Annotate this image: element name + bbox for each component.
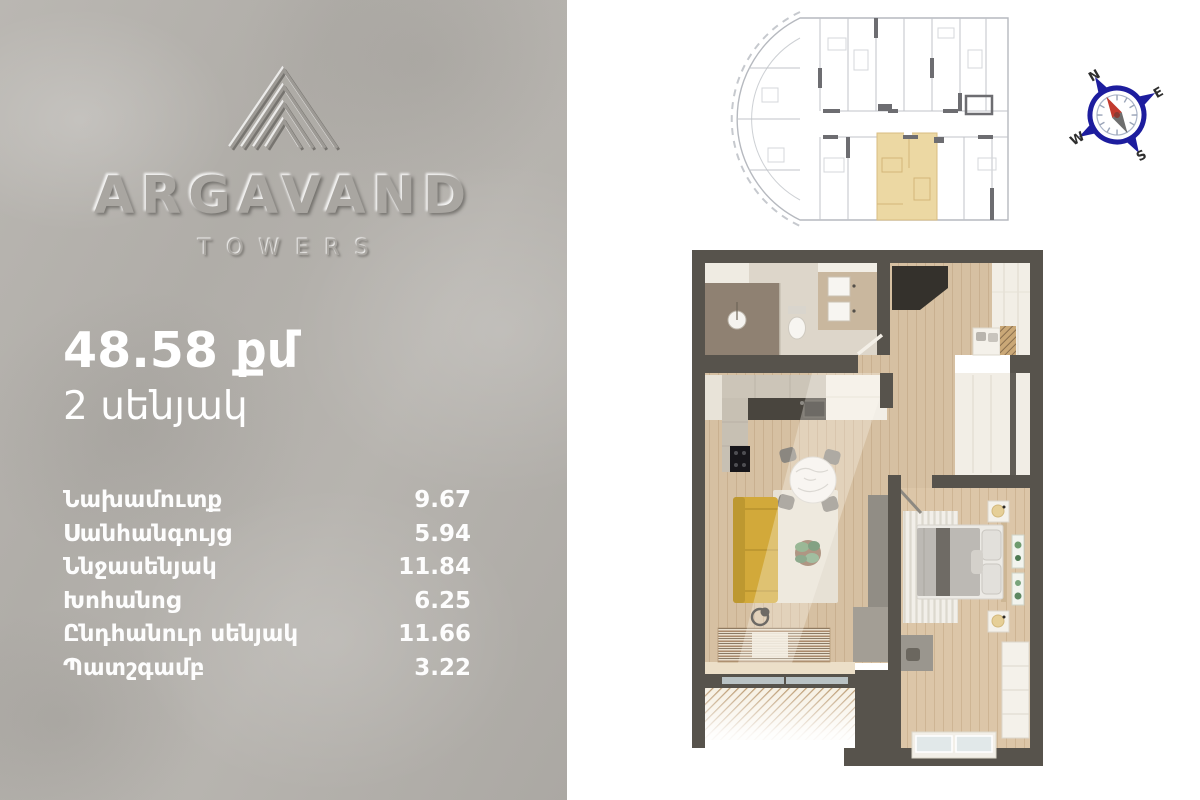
compass-label-s: S xyxy=(1134,147,1150,165)
table-lamp xyxy=(992,505,1004,517)
room-row: Պատշգամբ 3.22 xyxy=(63,655,471,689)
apartment-floorplan xyxy=(692,250,1043,766)
sink xyxy=(828,302,850,321)
bedroom-window xyxy=(912,732,996,758)
toilet xyxy=(789,317,806,339)
room-value: 9.67 xyxy=(414,487,471,513)
room-label: Ընդհանուր սենյակ xyxy=(63,621,298,647)
building-overview-plan xyxy=(728,8,1018,230)
room-table: Նախամուտք 9.67 Սանհանգույց 5.94 Ննջասենյ… xyxy=(63,487,471,689)
room-value: 5.94 xyxy=(414,521,471,547)
unit-rooms-count: 2 սենյակ xyxy=(63,384,248,429)
room-row: Նախամուտք 9.67 xyxy=(63,487,471,521)
cooktop xyxy=(730,446,750,472)
room-label: Պատշգամբ xyxy=(63,655,205,681)
room-row: Ննջասենյակ 11.84 xyxy=(63,554,471,588)
argavand-mark-icon xyxy=(219,60,349,156)
sink xyxy=(828,277,850,296)
pillow xyxy=(982,564,1001,594)
page: ARGAVAND TOWERS 48.58 քմ 2 սենյակ Նախամո… xyxy=(0,0,1200,800)
brand-subtitle: TOWERS xyxy=(0,236,567,261)
room-row: Խոհանոց 6.25 xyxy=(63,588,471,622)
unit-area: 48.58 քմ xyxy=(63,322,298,379)
brand-name: ARGAVAND xyxy=(0,166,567,226)
overview-highlighted-unit xyxy=(877,133,937,220)
room-label: Խոհանոց xyxy=(63,588,181,614)
table-lamp xyxy=(992,615,1004,627)
entry-slat-accent xyxy=(1000,326,1016,355)
hallway-wardrobe xyxy=(955,373,1030,475)
room-label: Սանհանգույց xyxy=(63,521,231,547)
room-row: Սանհանգույց 5.94 xyxy=(63,521,471,555)
room-value: 3.22 xyxy=(414,655,471,681)
brand-panel: ARGAVAND TOWERS 48.58 քմ 2 սենյակ Նախամո… xyxy=(0,0,567,800)
room-value: 6.25 xyxy=(414,588,471,614)
room-value: 11.66 xyxy=(398,621,471,647)
pillow xyxy=(982,530,1001,560)
room-value: 11.84 xyxy=(398,554,471,580)
brand-logo: ARGAVAND TOWERS xyxy=(0,60,567,261)
compass-label-e: E xyxy=(1151,85,1166,102)
room-label: Նախամուտք xyxy=(63,487,222,513)
room-label: Ննջասենյակ xyxy=(63,554,217,580)
media-cabinet xyxy=(853,607,888,662)
room-row: Ընդհանուր սենյակ 11.66 xyxy=(63,621,471,655)
compass-icon: N E S W xyxy=(1060,58,1174,172)
